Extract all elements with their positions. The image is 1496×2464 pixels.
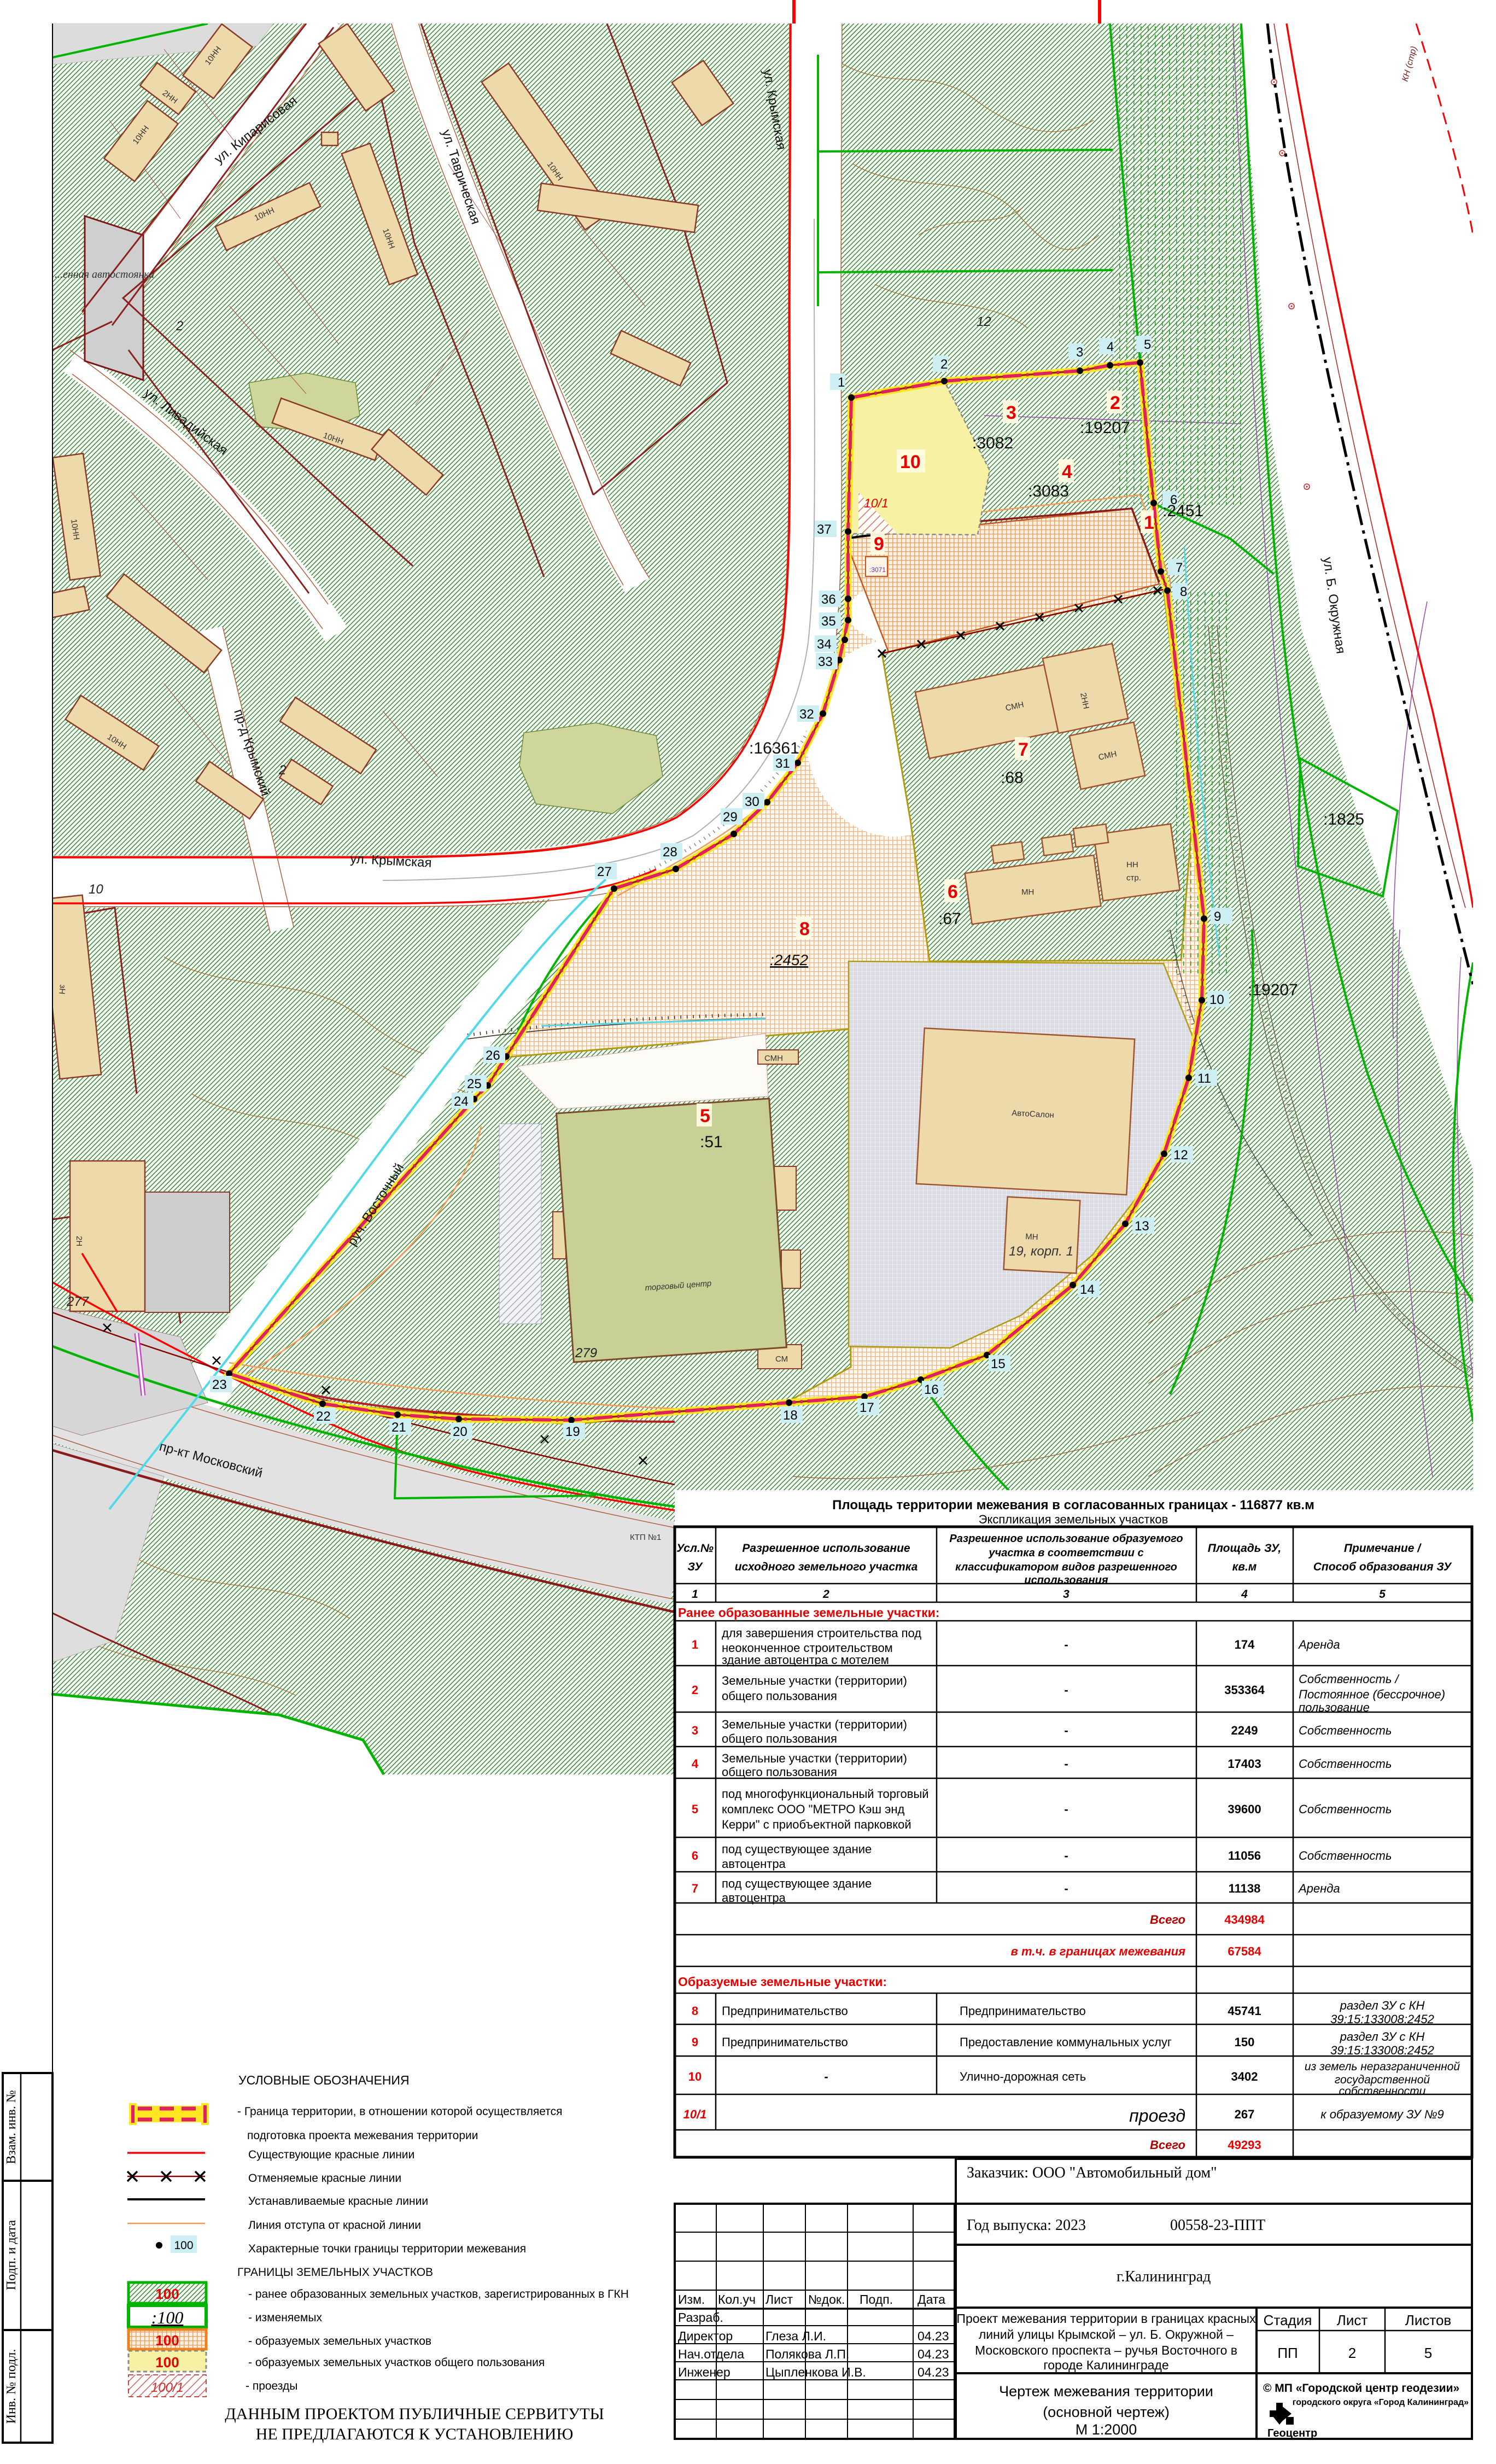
- svg-text:Стадия: Стадия: [1264, 2312, 1312, 2328]
- svg-text:Земельные участки (территории): Земельные участки (территории): [722, 1674, 907, 1688]
- svg-text:34: 34: [817, 637, 832, 652]
- svg-text:3: 3: [1063, 1588, 1070, 1601]
- svg-text:к образуемому ЗУ №9: к образуемому ЗУ №9: [1320, 2107, 1444, 2121]
- svg-text:под существующее здание: под существующее здание: [722, 1877, 872, 1890]
- svg-text:Постоянное (бессрочное): Постоянное (бессрочное): [1299, 1688, 1445, 1701]
- svg-text:собственности: собственности: [1339, 2085, 1426, 2098]
- svg-text:11138: 11138: [1229, 1882, 1261, 1895]
- svg-text:ЗУ: ЗУ: [688, 1561, 704, 1573]
- svg-text:Геоцентр: Геоцентр: [1267, 2427, 1317, 2439]
- svg-text:Год выпуска: 2023: Год выпуска: 2023: [967, 2217, 1086, 2234]
- svg-text:общего пользования: общего пользования: [722, 1732, 837, 1745]
- svg-text:© МП «Городской центр геодезии: © МП «Городской центр геодезии»: [1263, 2382, 1459, 2395]
- svg-text:2: 2: [176, 319, 183, 334]
- svg-text:3402: 3402: [1231, 2070, 1258, 2083]
- svg-text:11056: 11056: [1228, 1849, 1261, 1862]
- svg-text::3083: :3083: [1028, 482, 1069, 500]
- svg-text:Предпринимательство: Предпринимательство: [722, 2004, 848, 2018]
- svg-text:04.23: 04.23: [918, 2365, 949, 2379]
- svg-text:Предпринимательство: Предпринимательство: [960, 2004, 1086, 2018]
- svg-text:174: 174: [1235, 1638, 1255, 1651]
- svg-text::2451: :2451: [1162, 502, 1203, 520]
- svg-text:Существующие красные линии: Существующие красные линии: [248, 2148, 414, 2161]
- svg-text:00558-23-ППТ: 00558-23-ППТ: [1170, 2217, 1265, 2234]
- svg-text:Собственность /: Собственность /: [1299, 1672, 1400, 1686]
- svg-text:17: 17: [860, 1400, 874, 1415]
- svg-text:11: 11: [1197, 1071, 1211, 1086]
- svg-text:использования: использования: [1024, 1574, 1108, 1586]
- svg-text:Изм.: Изм.: [678, 2292, 705, 2307]
- svg-text:Собственность: Собственность: [1299, 1757, 1392, 1771]
- svg-text:32: 32: [799, 707, 814, 722]
- svg-text:16: 16: [924, 1382, 939, 1397]
- svg-text:4: 4: [1241, 1588, 1248, 1601]
- svg-text:раздел ЗУ с КН: раздел ЗУ с КН: [1340, 2030, 1425, 2043]
- svg-text:Разраб.: Разраб.: [678, 2310, 723, 2325]
- svg-text:Всего: Всего: [1150, 1913, 1185, 1926]
- svg-text:для завершения строительства п: для завершения строительства под: [722, 1626, 921, 1640]
- svg-text:в т.ч. в границах межевания: в т.ч. в границах межевания: [1011, 1945, 1185, 1958]
- svg-text:г.Калининград: г.Калининград: [1117, 2268, 1211, 2285]
- svg-text:100: 100: [174, 2239, 193, 2252]
- svg-text:19: 19: [565, 1424, 580, 1439]
- svg-text:Лист: Лист: [765, 2292, 793, 2307]
- svg-text:100: 100: [155, 2332, 179, 2349]
- svg-text:НЕ ПРЕДЛАГАЮТСЯ К УСТАНОВЛЕНИЮ: НЕ ПРЕДЛАГАЮТСЯ К УСТАНОВЛЕНИЮ: [256, 2425, 574, 2443]
- svg-text:под существующее здание: под существующее здание: [722, 1842, 872, 1856]
- svg-text:277: 277: [66, 1294, 90, 1309]
- svg-text:Характерные точки границы терр: Характерные точки границы территории меж…: [248, 2243, 526, 2255]
- svg-text:9: 9: [692, 2035, 698, 2049]
- svg-text:городе Калининграде: городе Калининграде: [1043, 2358, 1168, 2372]
- svg-text:пользование: пользование: [1299, 1701, 1370, 1714]
- svg-text:Собственность: Собственность: [1299, 1802, 1392, 1816]
- svg-text:1: 1: [1144, 512, 1154, 533]
- svg-text:Цыпленкова И.В.: Цыпленкова И.В.: [765, 2365, 866, 2379]
- svg-text:городского округа «Город Калин: городского округа «Город Калининград»: [1293, 2398, 1469, 2407]
- svg-text:39:15:133008:2452: 39:15:133008:2452: [1330, 2043, 1434, 2057]
- svg-text:общего пользования: общего пользования: [722, 1765, 837, 1779]
- svg-text:Подп. и дата: Подп. и дата: [4, 2220, 19, 2291]
- svg-text:ДАННЫМ ПРОЕКТОМ ПУБЛИЧНЫЕ СЕРВ: ДАННЫМ ПРОЕКТОМ ПУБЛИЧНЫЕ СЕРВИТУТЫ: [225, 2405, 604, 2423]
- svg-text:СМ: СМ: [775, 1354, 788, 1364]
- svg-text:29: 29: [723, 810, 738, 825]
- svg-text:Земельные участки (территории): Земельные участки (территории): [722, 1751, 907, 1765]
- svg-text:8: 8: [1180, 585, 1187, 599]
- svg-text:общего пользования: общего пользования: [722, 1689, 837, 1703]
- svg-text::51: :51: [700, 1133, 723, 1151]
- svg-text:27: 27: [597, 865, 612, 879]
- svg-text:10/1: 10/1: [864, 496, 889, 510]
- svg-text:2: 2: [692, 1683, 698, 1697]
- svg-text:автоцентра: автоцентра: [722, 1891, 786, 1905]
- svg-text:- ранее образованных земельных: - ранее образованных земельных участков,…: [248, 2288, 629, 2300]
- svg-text:39:15:133008:2452: 39:15:133008:2452: [1330, 2012, 1434, 2026]
- svg-text:37: 37: [817, 522, 832, 537]
- svg-text:7: 7: [1018, 739, 1028, 760]
- svg-text:Нач.отдела: Нач.отдела: [678, 2347, 744, 2361]
- svg-text:Собственность: Собственность: [1299, 1724, 1392, 1737]
- svg-text:4: 4: [1107, 340, 1114, 354]
- svg-text:- проезды: - проезды: [246, 2380, 297, 2392]
- svg-text:3: 3: [692, 1724, 698, 1737]
- svg-text::3071: :3071: [869, 566, 886, 574]
- svg-text:стр.: стр.: [1126, 873, 1141, 883]
- svg-text:Улично-дорожная сеть: Улично-дорожная сеть: [960, 2070, 1086, 2083]
- svg-text:8: 8: [799, 919, 810, 939]
- svg-text:9: 9: [874, 534, 884, 554]
- svg-text:4: 4: [1062, 462, 1072, 482]
- svg-text:04.23: 04.23: [918, 2329, 949, 2343]
- svg-text:14: 14: [1080, 1282, 1095, 1297]
- svg-text:20: 20: [453, 1424, 467, 1439]
- svg-text:подготовка проекта межевания т: подготовка проекта межевания территории: [247, 2129, 478, 2142]
- svg-text:67584: 67584: [1228, 1945, 1261, 1958]
- svg-text:-: -: [1064, 1882, 1068, 1895]
- svg-text:1: 1: [838, 375, 845, 390]
- svg-text:Подп.: Подп.: [860, 2292, 893, 2307]
- svg-text:Предоставление коммунальных ус: Предоставление коммунальных услуг: [960, 2035, 1172, 2049]
- svg-text:-: -: [824, 2070, 828, 2083]
- svg-text:Предпринимательство: Предпринимательство: [722, 2035, 848, 2049]
- svg-text:2: 2: [1348, 2345, 1356, 2361]
- svg-text:кв.м: кв.м: [1232, 1561, 1257, 1573]
- svg-text:39600: 39600: [1228, 1802, 1261, 1816]
- svg-text:100: 100: [155, 2354, 179, 2370]
- svg-text:Разрешенное использование обра: Разрешенное использование образуемого: [949, 1533, 1183, 1545]
- svg-text::1825: :1825: [1323, 810, 1364, 828]
- svg-text:3: 3: [1076, 345, 1083, 360]
- svg-text:Устанавливаемые красные линии: Устанавливаемые красные линии: [248, 2195, 428, 2208]
- svg-text:№док.: №док.: [808, 2292, 845, 2307]
- svg-text:353364: 353364: [1224, 1683, 1265, 1697]
- svg-text:2Н: 2Н: [74, 1236, 84, 1246]
- svg-text:2: 2: [940, 357, 948, 372]
- svg-text:Разрешенное использование: Разрешенное использование: [742, 1542, 910, 1555]
- svg-text::3082: :3082: [972, 434, 1013, 452]
- svg-text:-: -: [1064, 1724, 1068, 1737]
- svg-text:Московского проспекта – ручья: Московского проспекта – ручья Восточного…: [975, 2343, 1237, 2357]
- svg-text:10: 10: [900, 452, 921, 472]
- svg-text:Земельные участки (территории): Земельные участки (территории): [722, 1718, 907, 1731]
- svg-text::2452: :2452: [770, 951, 808, 968]
- svg-text:31: 31: [775, 756, 790, 771]
- svg-text:Кол.уч: Кол.уч: [718, 2292, 756, 2307]
- svg-text:проезд: проезд: [1129, 2106, 1185, 2126]
- svg-text:-: -: [1064, 1802, 1068, 1816]
- svg-text:25: 25: [467, 1077, 482, 1091]
- svg-text:СМН: СМН: [764, 1054, 783, 1063]
- svg-text:10: 10: [89, 882, 103, 897]
- svg-text:НН: НН: [1126, 860, 1138, 869]
- svg-text:Инв. № подл.: Инв. № подл.: [4, 2349, 19, 2424]
- svg-text:21: 21: [391, 1420, 406, 1435]
- svg-text:Способ образования ЗУ: Способ образования ЗУ: [1313, 1561, 1452, 1573]
- svg-text:Аренда: Аренда: [1298, 1882, 1340, 1895]
- svg-text::19207: :19207: [1080, 419, 1130, 437]
- svg-text:- образуемых земельных участко: - образуемых земельных участков: [248, 2335, 431, 2348]
- svg-text:-: -: [1064, 1683, 1068, 1697]
- svg-text:30: 30: [745, 795, 759, 809]
- svg-text:7: 7: [692, 1882, 698, 1895]
- svg-text:12: 12: [977, 314, 991, 329]
- svg-text:17403: 17403: [1228, 1757, 1261, 1771]
- svg-text:6: 6: [692, 1849, 698, 1862]
- svg-text:Образуемые земельные участки:: Образуемые земельные участки:: [678, 1975, 887, 1989]
- svg-text:3: 3: [1006, 402, 1016, 423]
- svg-text:линий улицы Крымской – ул. Б.: линий улицы Крымской – ул. Б. Окружной –: [979, 2327, 1234, 2342]
- svg-text:Чертеж межевания территории: Чертеж межевания территории: [999, 2383, 1213, 2399]
- svg-text:раздел ЗУ с КН: раздел ЗУ с КН: [1340, 1999, 1425, 2012]
- svg-text:автоцентра: автоцентра: [722, 1857, 786, 1871]
- svg-text:государственной: государственной: [1335, 2074, 1430, 2086]
- svg-text:9: 9: [1214, 909, 1221, 924]
- svg-text:2: 2: [278, 763, 286, 778]
- svg-text:13: 13: [1135, 1219, 1149, 1234]
- svg-text:22: 22: [316, 1409, 331, 1424]
- svg-text:Аренда: Аренда: [1298, 1638, 1340, 1651]
- svg-text:Усл.№: Усл.№: [676, 1542, 714, 1555]
- svg-text:5: 5: [1379, 1588, 1386, 1601]
- svg-text:15: 15: [991, 1357, 1006, 1371]
- svg-text::67: :67: [938, 910, 961, 928]
- svg-text:26: 26: [486, 1048, 500, 1063]
- svg-text:49293: 49293: [1228, 2138, 1261, 2152]
- svg-text:Линия отступа от красной линии: Линия отступа от красной линии: [248, 2219, 421, 2232]
- svg-text:Проект межевания территории в: Проект межевания территории в границах к…: [956, 2311, 1256, 2326]
- svg-text:Примечание /: Примечание /: [1344, 1542, 1422, 1555]
- svg-text:участка в соответствии с: участка в соответствии с: [988, 1547, 1143, 1559]
- svg-text:- Граница территории, в отноше: - Граница территории, в отношении которо…: [237, 2105, 562, 2118]
- svg-text:5: 5: [1144, 337, 1151, 352]
- svg-text:(основной чертеж): (основной чертеж): [1043, 2404, 1170, 2420]
- svg-text:-: -: [1064, 1757, 1068, 1771]
- svg-text:19, корп. 1: 19, корп. 1: [1009, 1244, 1073, 1259]
- svg-text:10: 10: [1209, 992, 1224, 1007]
- svg-text:2: 2: [822, 1588, 829, 1601]
- svg-text:комплекс ООО "МЕТРО Кэш энд: комплекс ООО "МЕТРО Кэш энд: [722, 1802, 904, 1816]
- svg-text:12: 12: [1173, 1148, 1188, 1163]
- svg-text:Собственность: Собственность: [1299, 1849, 1392, 1862]
- svg-text:КТП №1: КТП №1: [630, 1533, 661, 1542]
- svg-text:Площадь территории межевания в: Площадь территории межевания в согласова…: [832, 1498, 1314, 1513]
- svg-text:45741: 45741: [1228, 2004, 1261, 2018]
- svg-text:6: 6: [948, 881, 958, 902]
- svg-text:Директор: Директор: [678, 2329, 733, 2343]
- svg-text::68: :68: [1001, 769, 1024, 787]
- svg-text:2: 2: [1110, 393, 1120, 413]
- svg-text:...енная автостоянка: ...енная автостоянка: [55, 268, 154, 281]
- svg-text:исходного земельного участка: исходного земельного участка: [735, 1561, 918, 1573]
- svg-text:-: -: [1064, 1638, 1068, 1651]
- svg-text:267: 267: [1235, 2107, 1255, 2121]
- svg-text:Дата: Дата: [918, 2292, 945, 2307]
- svg-text:434984: 434984: [1224, 1913, 1265, 1926]
- svg-text:классификатором видов разрешен: классификатором видов разрешенного: [955, 1561, 1177, 1573]
- svg-text:35: 35: [821, 614, 836, 629]
- svg-text:100/1: 100/1: [151, 2380, 184, 2395]
- svg-text:23: 23: [212, 1377, 227, 1392]
- svg-text:здание автоцентра с мотелем: здание автоцентра с мотелем: [722, 1653, 889, 1667]
- svg-text:10/1: 10/1: [683, 2107, 707, 2121]
- svg-text::16361: :16361: [749, 739, 799, 757]
- svg-text:МН: МН: [1025, 1232, 1038, 1242]
- svg-text:Экспликация земельных участков: Экспликация земельных участков: [979, 1513, 1168, 1526]
- svg-text:из земель неразграниченной: из земель неразграниченной: [1305, 2060, 1460, 2073]
- svg-text:-: -: [1064, 1849, 1068, 1862]
- svg-text:Отменяемые красные линии: Отменяемые красные линии: [248, 2172, 401, 2185]
- svg-text:Лист: Лист: [1337, 2312, 1368, 2328]
- svg-text:33: 33: [818, 655, 833, 669]
- svg-text:Ранее образованные земельные у: Ранее образованные земельные участки:: [678, 1605, 939, 1620]
- svg-text:1: 1: [692, 1638, 698, 1651]
- svg-text:2249: 2249: [1231, 1724, 1258, 1737]
- svg-text:Листов: Листов: [1405, 2312, 1451, 2328]
- svg-text:279: 279: [575, 1346, 597, 1361]
- svg-text:Взам. инв. №: Взам. инв. №: [4, 2090, 19, 2164]
- svg-text:Полякова Л.П.: Полякова Л.П.: [765, 2347, 849, 2361]
- svg-text:под многофункциональный торгов: под многофункциональный торговый: [722, 1787, 929, 1801]
- svg-text:зН: зН: [57, 984, 67, 995]
- svg-text:Инженер: Инженер: [678, 2365, 731, 2379]
- svg-text:Всего: Всего: [1150, 2138, 1185, 2152]
- svg-text:36: 36: [821, 592, 836, 607]
- svg-text:5: 5: [692, 1802, 698, 1816]
- svg-text::19207: :19207: [1248, 981, 1298, 999]
- svg-text:Глеза Л.И.: Глеза Л.И.: [765, 2329, 826, 2343]
- svg-text:5: 5: [1424, 2345, 1432, 2361]
- svg-text:- образуемых земельных участко: - образуемых земельных участков общего п…: [248, 2356, 545, 2369]
- svg-text:М 1:2000: М 1:2000: [1076, 2421, 1137, 2438]
- svg-text:8: 8: [692, 2004, 698, 2018]
- svg-text:1: 1: [692, 1588, 698, 1601]
- svg-text:24: 24: [454, 1094, 469, 1109]
- svg-text:04.23: 04.23: [918, 2347, 949, 2361]
- svg-text:28: 28: [663, 845, 677, 860]
- svg-text:ГРАНИЦЫ ЗЕМЕЛЬНЫХ УЧАСТКОВ: ГРАНИЦЫ ЗЕМЕЛЬНЫХ УЧАСТКОВ: [237, 2266, 433, 2279]
- svg-text:МН: МН: [1021, 887, 1034, 897]
- svg-text:- изменяемых: - изменяемых: [248, 2311, 322, 2324]
- svg-text:ПП: ПП: [1277, 2345, 1298, 2361]
- svg-text:Заказчик: ООО "Автомобильный д: Заказчик: ООО "Автомобильный дом": [967, 2164, 1217, 2181]
- svg-text:УСЛОВНЫЕ ОБОЗНАЧЕНИЯ: УСЛОВНЫЕ ОБОЗНАЧЕНИЯ: [238, 2073, 410, 2087]
- svg-text:100: 100: [155, 2286, 179, 2302]
- svg-text:10: 10: [688, 2070, 702, 2083]
- svg-text:4: 4: [692, 1757, 699, 1771]
- svg-text:Площадь ЗУ,: Площадь ЗУ,: [1208, 1542, 1282, 1555]
- svg-text:150: 150: [1235, 2035, 1255, 2049]
- svg-text:Керри" с приобъектной парковко: Керри" с приобъектной парковкой: [722, 1818, 911, 1831]
- svg-text:7: 7: [1176, 560, 1183, 575]
- svg-text::100: :100: [151, 2308, 184, 2327]
- svg-text:5: 5: [700, 1106, 710, 1126]
- svg-text:18: 18: [783, 1408, 798, 1423]
